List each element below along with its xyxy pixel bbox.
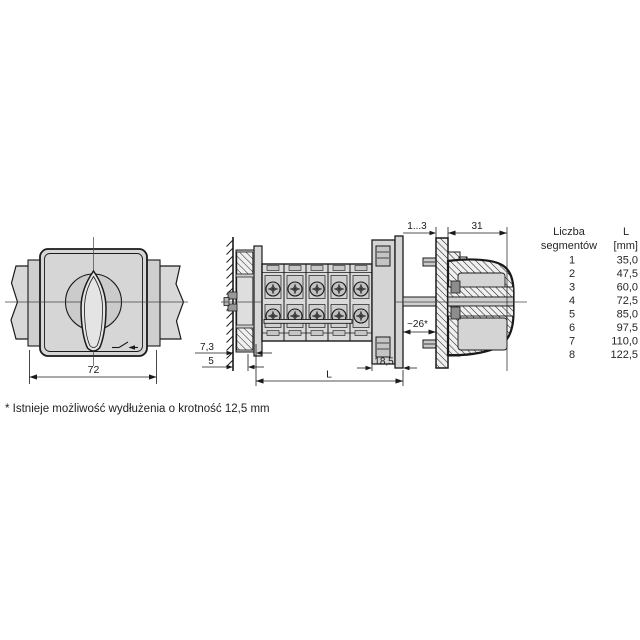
dim-L-label: L [326,369,332,381]
header-segments-line1: Liczba [553,226,586,238]
svg-text:2: 2 [569,268,575,280]
table-row: 3 60,0 [569,282,638,294]
dim-7-3-label: 7,3 [200,342,214,353]
bracket-mid [237,277,253,325]
flange-screw-top [376,246,390,266]
dim-L: L [256,369,403,387]
front-view: 72 [5,237,188,384]
hub-detail-bottom [451,307,460,319]
svg-text:6: 6 [569,322,575,334]
dim-18-5-label: 18,5 [374,357,394,368]
shaft-core [448,297,514,306]
footnote: * Istnieje możliwość wydłużenia o krotno… [5,403,270,415]
dim-18-5: 18,5 [357,357,417,372]
svg-text:47,5: 47,5 [617,268,638,280]
svg-text:8: 8 [569,349,575,361]
table-row: 1 35,0 [569,255,638,267]
rail-bracket-right [147,260,160,346]
technical-drawing: 72 [0,0,640,640]
rail-bracket-left [28,260,41,346]
mounting-panel [436,238,448,368]
actuator-rod [264,320,352,324]
dim-31-label: 31 [471,221,483,232]
table-header: Liczba L segmentów [mm] [541,226,638,252]
side-section-view: 7,3 5 L 18,5 ~26* [195,236,436,386]
svg-text:97,5: 97,5 [617,322,638,334]
dim-5-label: 5 [208,356,214,367]
svg-text:4: 4 [569,295,575,307]
header-segments-line2: segmentów [541,240,597,252]
mounting-stud-top [423,258,436,266]
table-row: 4 72,5 [569,295,638,307]
svg-text:1: 1 [569,255,575,267]
panel-mount-view: 1...3 31 [403,221,514,368]
svg-text:122,5: 122,5 [610,349,638,361]
header-length-line2: [mm] [614,240,638,252]
svg-text:110,0: 110,0 [611,336,638,348]
dim-72-label: 72 [88,364,100,376]
svg-text:35,0: 35,0 [617,255,638,267]
table-row: 7 110,0 [569,336,638,348]
svg-text:60,0: 60,0 [617,282,638,294]
svg-text:5: 5 [569,309,575,321]
svg-text:72,5: 72,5 [617,295,638,307]
dim-26: ~26* [403,319,436,335]
hub-detail-top [451,281,460,293]
back-plate [254,246,262,356]
knob-cavity-bottom [458,318,507,350]
drive-shaft [403,297,436,306]
dim-26-label: ~26* [407,319,428,330]
svg-text:7: 7 [569,336,575,348]
mounting-stud-bottom [423,340,436,348]
dim-31: 31 [448,221,507,236]
header-length-line1: L [623,226,629,238]
bracket-section-top [237,252,253,274]
table-row: 8 122,5 [569,349,638,361]
svg-text:3: 3 [569,282,575,294]
table-row: 2 47,5 [569,268,638,280]
table-row: 5 85,0 [569,309,638,321]
segments-table: Liczba L segmentów [mm] 1 35,0 2 47,5 3 … [541,226,638,361]
table-row: 6 97,5 [569,322,638,334]
bracket-section-bottom [237,328,253,350]
flange-screw-bottom [376,337,390,357]
dim-1-3: 1...3 [403,221,448,240]
svg-text:85,0: 85,0 [617,309,638,321]
catalog-drawing-page: 72 [0,0,640,640]
dim-1-3-label: 1...3 [407,221,427,232]
shaft-stub [224,298,229,306]
